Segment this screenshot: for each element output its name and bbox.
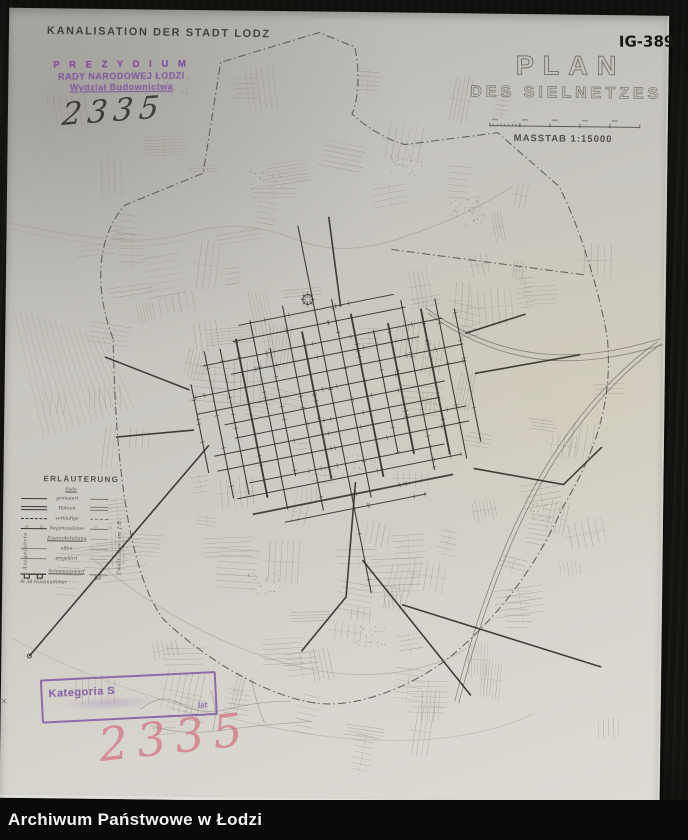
- legend-column-header: Siele: [65, 487, 121, 493]
- archive-caption-bar: Archiwum Państwowe w Łodzi: [0, 800, 688, 840]
- map-subtitle: DES SIELNETZES: [470, 83, 655, 103]
- legend-sample: [21, 506, 47, 510]
- pencil-mark: ×: [1, 696, 8, 708]
- legend-sample-right: [90, 507, 108, 511]
- legend-label: offen: [47, 546, 87, 551]
- legend-title: ERLÄUTERUNG: [43, 474, 121, 484]
- archive-caption: Archiwum Państwowe w Łodzi: [8, 810, 262, 830]
- legend-label: Regenauslässe: [47, 526, 87, 531]
- map-title: PLAN: [501, 50, 641, 81]
- legend-sample-right: [90, 518, 108, 519]
- legend-label: Röhren: [47, 506, 87, 511]
- legend-sample-right: [90, 498, 108, 499]
- scale-label: MASSTAB 1:15000: [514, 133, 613, 145]
- legend-sample: [21, 527, 47, 528]
- legend-left-vertical-label: Ausgeführte: [22, 532, 28, 570]
- legend-label: vorläufige: [47, 516, 87, 521]
- legend-label: gemauert: [47, 496, 87, 501]
- legend-row-snow: Schneeauswurf: [20, 565, 120, 579]
- legend-label: projektirt: [46, 556, 86, 561]
- legend-sample-right: [90, 528, 108, 529]
- legend-right-vertical-label: Zweit. Ber. im J.B.: [116, 518, 123, 575]
- legend-sample: [21, 517, 47, 518]
- legend-sample: [21, 497, 47, 498]
- legend-label-snow: Schneeauswurf: [46, 569, 86, 574]
- legend-sample-right: [90, 538, 108, 539]
- stamp-line3: Wydział Budownictwa: [36, 81, 206, 92]
- legend-row: projektirt: [20, 553, 120, 564]
- stamp-line2: RADY NARODOWEJ ŁODZI: [36, 70, 206, 81]
- map-legend: ERLÄUTERUNG Siele gemauertRöhrenvorläufi…: [20, 474, 121, 586]
- legend-label: Eisenrohrleitung: [47, 536, 87, 541]
- signature-number: IG-389: [619, 32, 675, 50]
- stamp-line1: P R E Z Y D I U M: [36, 58, 206, 70]
- archive-photo-page: KANALISATION DER STADT LODZ P R E Z Y D …: [0, 0, 688, 840]
- map-photo: KANALISATION DER STADT LODZ P R E Z Y D …: [0, 8, 669, 806]
- legend-sample-right: [90, 548, 108, 549]
- legend-sample-right: [90, 558, 108, 559]
- registry-stamp: P R E Z Y D I U M RADY NARODOWEJ ŁODZI W…: [36, 58, 206, 92]
- legend-rows: gemauertRöhrenvorläufigeRegenauslässeEis…: [20, 493, 121, 564]
